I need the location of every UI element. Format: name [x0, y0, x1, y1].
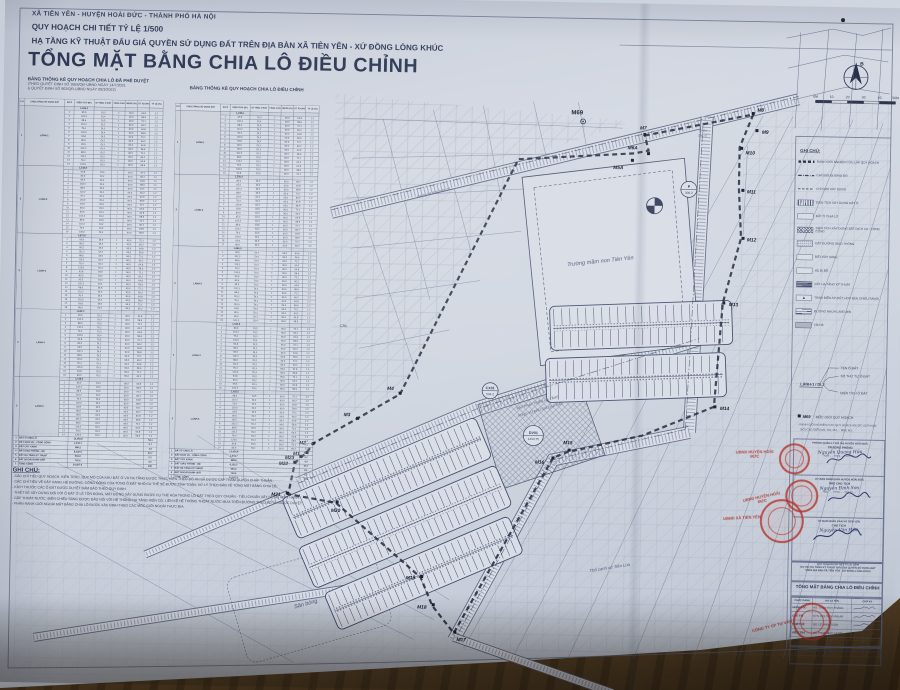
- sheet-title-bar: TỔNG MẶT BẰNG CHIA LÔ ĐIỀU CHỈNH: [790, 581, 882, 598]
- legend-swatch-l-dot: [797, 240, 813, 246]
- legend-label: DIỆN TÍCH XÂY DỰNG ĐẤT Ở: [816, 201, 887, 205]
- svg-text:TÊN Ô ĐẤT: TÊN Ô ĐẤT: [841, 365, 859, 370]
- scale-bar: 0M1020304050M: [813, 95, 899, 105]
- svg-text:M69: M69: [803, 414, 812, 419]
- scale-tick-label: 0M: [813, 95, 818, 99]
- legend-panel: GHI CHÚ: RANH GIỚI NGHIÊN CỨU LẬP QUY HO…: [795, 146, 891, 356]
- scale-tick-label: 20: [846, 95, 850, 99]
- marker-point-M16: [551, 456, 554, 459]
- marker-label-M11: M11: [747, 189, 756, 195]
- parcel-code: DV01: [529, 431, 538, 435]
- group-label: LÀNH-2: [178, 174, 219, 246]
- legend-label: ĐẤT HẠ TẦNG KỸ THUẬT: [815, 283, 886, 287]
- group-label: LÀNH-4: [20, 309, 61, 377]
- handwritten-signature: [825, 451, 873, 468]
- legend-swatch-l-hd: [796, 281, 812, 287]
- signature-squiggle: [852, 606, 876, 612]
- legend-label: ĐẤT ĐƯỜNG GIAO THÔNG: [815, 242, 886, 246]
- legend-swatch-l-pl: [797, 213, 813, 219]
- svg-text:SỐ THỨ TỰ Ô ĐẤT: SỐ THỨ TỰ Ô ĐẤT: [840, 373, 870, 379]
- group-label: LÀNH-4: [176, 321, 217, 389]
- marker-point-M6A: [647, 152, 650, 155]
- sheet-content: M1M2M3M4M5AM6AM7M8M9M10M11M12M13M14M15M1…: [0, 0, 900, 690]
- signature-squiggle: [852, 614, 876, 620]
- marker-point-M14: [713, 405, 716, 408]
- geodetic-point-symbol: [646, 198, 662, 214]
- group-label: LÀNH-1: [24, 106, 65, 166]
- legend-swatch-l-pl: [796, 267, 812, 273]
- photo-of-paper-plan: M1M2M3M4M5AM6AM7M8M9M10M11M12M13M14M15M1…: [0, 0, 900, 690]
- marker-label-M12: M12: [747, 237, 757, 243]
- svg-text:LÁNH-1 / DL2: LÁNH-1 / DL2: [800, 381, 824, 386]
- compass-north-letter: B: [860, 61, 864, 67]
- group-label: LÀNH-5: [19, 376, 60, 436]
- legend-title: GHI CHÚ:: [800, 148, 890, 154]
- legend-label: ĐẤT CÂY XANH: [815, 255, 886, 259]
- marker-point-M3: [356, 417, 359, 420]
- company-name: CÔNG TY CỔ PHẦN TƯ VẤN ĐẦU TƯ XÂY DỰNG V…: [795, 649, 881, 656]
- marker-point-M12: [741, 237, 744, 240]
- marker-point-M8: [752, 112, 755, 115]
- marker-label-M17: M17: [457, 637, 467, 643]
- parcel-area: 306.2: [685, 191, 693, 195]
- statistics-table: STTCHỨC NĂNG SỬ DỤNG ĐẤTSỐ ÔDIỆN TÍCH (M…: [13, 98, 164, 469]
- north-arrow: B: [844, 61, 869, 89]
- marker-point-M17: [453, 631, 456, 634]
- marker-point-M11: [741, 189, 744, 192]
- parcel-area: 504.2: [486, 392, 494, 396]
- marker-point-M15: [568, 449, 571, 452]
- legend-swatch-l-red: [798, 175, 814, 176]
- marker-point-M18: [432, 603, 435, 606]
- marker-label-M8: M8: [757, 108, 764, 114]
- marker-label-M9: M9: [762, 130, 769, 136]
- legend-swatch-l-tba: ▲: [796, 295, 812, 301]
- legend-swatch-l-pl: [797, 254, 813, 260]
- legend-swatch-l-hx: [797, 227, 813, 233]
- legend-swatch-l-hv: [798, 199, 814, 205]
- map-label: CH04: [699, 129, 707, 133]
- parcel-area: 1344.75: [528, 437, 540, 441]
- scale-tick-label: 10: [830, 95, 834, 99]
- svg-text:: MỐC GIỚI QUY HOẠCH: : MỐC GIỚI QUY HOẠCH: [814, 414, 854, 420]
- legend-swatch-l-ln: [796, 308, 812, 314]
- signature-squiggle: [852, 631, 876, 637]
- approved-lot-statistics-table: STTCHỨC NĂNG SỬ DỤNG ĐẤTSỐ ÔDIỆN TÍCH (M…: [13, 98, 172, 473]
- map-label: Cầu: [340, 323, 348, 328]
- marker-point-M10: [740, 147, 743, 150]
- legend-label: HÈ ĐI BỘ: [815, 269, 886, 273]
- signature-squiggle: [852, 622, 876, 628]
- map-label: M69: [571, 110, 583, 116]
- group-label: LÀNH-3: [177, 246, 218, 322]
- marker-label-M10: M10: [745, 150, 755, 156]
- marker-label-M4: M4: [387, 386, 394, 392]
- marker-label-M3: M3: [344, 412, 351, 418]
- legend-label: CHỈ GIỚI ĐƯỜNG ĐỎ: [817, 174, 888, 178]
- legend-label: ĐƯỜNG NHỰA LÁNG MỊN: [814, 310, 885, 314]
- marker-point-M19: [420, 575, 423, 578]
- legend-label: CHỈ GIỚI XÂY DỰNG: [816, 188, 887, 192]
- project-line: TRÊN ĐỊA BÀN XÃ TIÊN YÊN - XỨ ĐỒNG LÒNG …: [792, 569, 884, 574]
- legend-label: VỈA HÈ: [814, 323, 885, 327]
- marker-label-M19: M19: [406, 575, 416, 581]
- svg-text:BỞI CÁC ĐIỂM M1, M2, M3 ... M6: BỞI CÁC ĐIỂM M1, M2, M3 ... M69, M1.: [800, 426, 853, 432]
- sheet-title-text: TỔNG MẶT BẰNG CHIA LÔ ĐIỀU CHỈNH: [792, 584, 884, 590]
- group-label: LÀNH-5: [175, 389, 216, 449]
- group-label: LÀNH-3: [21, 233, 62, 309]
- marker-label-M13: M13: [729, 302, 739, 308]
- group-label: LÀNH-1: [180, 111, 221, 175]
- adjusted-lot-statistics-table: STTCHỨC NĂNG SỬ DỤNG ĐẤTSỐ ÔDIỆN TÍCH (M…: [168, 103, 333, 482]
- pen-mark: [841, 18, 845, 22]
- scale-tick-label: 40: [878, 96, 882, 100]
- statistics-table: STTCHỨC NĂNG SỬ DỤNG ĐẤTSỐ ÔDIỆN TÍCH (M…: [168, 103, 319, 482]
- marker-point-M4: [399, 392, 402, 395]
- marker-label-M5A: M5A: [613, 165, 624, 171]
- scale-tick-label: 30: [862, 96, 866, 100]
- legend-swatch-l-bound: [798, 160, 814, 163]
- group-label: LÀNH-2: [22, 165, 63, 233]
- marker-point-M13: [722, 301, 725, 304]
- handwritten-signature: [826, 490, 872, 506]
- legend-label: RANH GIỚI NGHIÊN CỨU LẬP QUY HOẠCH: [817, 160, 888, 164]
- legend-label: TRẠM BIẾN ÁP (KẾT HỢP ĐÈN CHIẾU SÁNG): [814, 296, 885, 300]
- parcel-code: CX01: [486, 386, 495, 390]
- legend-item: VỈA HÈ: [795, 318, 887, 333]
- marker-label-M6A: M6A: [628, 145, 639, 151]
- handwritten-signature: [811, 527, 863, 546]
- marker-label-M16: M16: [535, 460, 545, 466]
- company-footer-bar: CÔNG TY CỔ PHẦN TƯ VẤN ĐẦU TƯ XÂY DỰNG V…: [789, 646, 881, 666]
- marker-point-M7: [643, 133, 646, 136]
- legend-label: DIỆN TÍCH XÂY DỰNG ĐẤT DỊCH VỤ - CÔNG CỘ…: [816, 227, 887, 235]
- svg-text:DIỆN TÍCH Ô ĐẤT: DIỆN TÍCH Ô ĐẤT: [840, 390, 868, 396]
- map-label: 230.47: [698, 134, 708, 138]
- marker-label-M18: M18: [417, 604, 427, 610]
- notes-block: GHI CHÚ: - CÁC CHỈ TIÊU QUY HOẠCH, KIẾN …: [11, 466, 365, 558]
- marker-label-M14: M14: [720, 406, 730, 412]
- marker-label-M7: M7: [640, 125, 647, 131]
- legend-swatch-l-gy: [795, 322, 811, 328]
- project-info-box: QUY HOẠCH CHI TIẾT TỶ LỆ 1/500DỰ ÁN: HẠ …: [791, 561, 883, 583]
- scale-tick-label: 50M: [892, 96, 899, 100]
- legend-swatch-l-dash: [798, 188, 814, 189]
- marker-label-M15: M15: [563, 440, 573, 446]
- marker-point-M9: [755, 129, 758, 132]
- marker-point-M5A: [631, 159, 634, 162]
- legend-label: ĐẤT Ở CHIA LÔ: [816, 215, 887, 219]
